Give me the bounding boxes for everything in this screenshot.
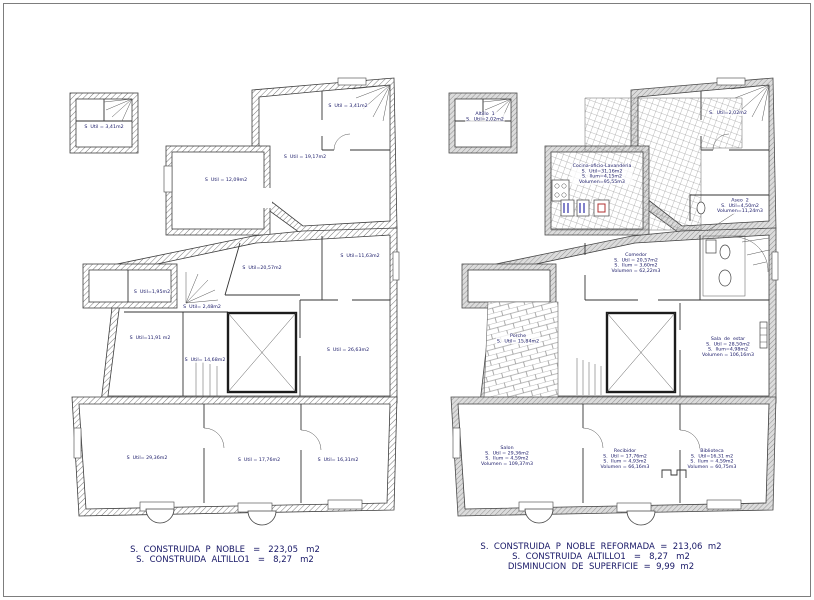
window xyxy=(717,78,745,85)
room-floor xyxy=(89,270,171,302)
porch-brick-floor xyxy=(484,302,558,398)
summary-line: S. CONSTRUIDA P NOBLE REFORMADA = 213,06… xyxy=(480,542,721,552)
toilet-icon xyxy=(720,245,730,259)
door-opening xyxy=(262,188,272,208)
room-label: S Util=1,95m2 xyxy=(133,289,171,294)
bay-window xyxy=(627,511,655,525)
room-label: S Util = 12,09m2 xyxy=(204,177,248,182)
room-label-line: S. Util= 15,84m2 xyxy=(497,339,539,344)
room-label: S Util= 29,36m2 xyxy=(126,455,169,460)
room-label-line: S Util= 16,31m2 xyxy=(318,457,359,462)
lightwell xyxy=(228,313,296,392)
room-label-line: S. Util=2,02m2 xyxy=(709,110,747,115)
room-label-line: S Util = 3,41m2 xyxy=(84,124,123,129)
appliance xyxy=(577,200,589,216)
room-label-line: S Util=1,95m2 xyxy=(134,289,170,294)
room-label: S Util= 14,68m2 xyxy=(184,357,227,362)
sink-icon xyxy=(706,240,716,253)
room-label: S Util = 26,63m2 xyxy=(326,347,370,352)
right-altillo xyxy=(449,93,517,153)
window xyxy=(772,252,778,280)
room-label-line: S Util=20,57m2 xyxy=(242,265,281,270)
room-label: S Util= 16,31m2 xyxy=(317,457,360,462)
room-floor xyxy=(468,270,550,302)
room-label-line: Volumen = 106,16m3 xyxy=(702,352,754,357)
room-label-line: Volumen = 66,16m3 xyxy=(601,464,650,469)
window xyxy=(74,428,81,458)
room-label: RecibidorS. Util = 17,76m2S. Ilum = 4,93… xyxy=(600,448,651,469)
window xyxy=(453,428,460,458)
room-label-line: S Util= 14,68m2 xyxy=(185,357,226,362)
room-label: ComedorS. Util = 20,57m2S. Ilum = 3,60m2… xyxy=(611,252,662,273)
room-label-line: Volumen = 62,22m3 xyxy=(612,268,661,273)
room-label-line: S Util = 26,63m2 xyxy=(327,347,369,352)
room-label-line: S Util=11,91 m2 xyxy=(130,335,171,340)
bay-window xyxy=(248,511,276,525)
window xyxy=(393,252,399,280)
room-label: S Util = 19,17m2 xyxy=(283,154,327,159)
room-label-line: Volumen = 60,75m3 xyxy=(688,464,737,469)
right-small-annex xyxy=(462,264,556,308)
cooktop xyxy=(552,180,569,201)
summary-line: S. CONSTRUIDA ALTILLO1 = 8,27 m2 xyxy=(130,555,320,565)
appliance xyxy=(594,200,609,216)
left-plan-summary: S. CONSTRUIDA P NOBLE = 223,05 m2S. CONS… xyxy=(130,545,320,565)
room-label: S Util=11,91 m2 xyxy=(129,335,172,340)
bay-window xyxy=(146,509,174,523)
room-label-line: S Util= 29,36m2 xyxy=(127,455,168,460)
room-label: S Util = 17,76m2 xyxy=(237,457,281,462)
room-floor xyxy=(172,152,264,229)
room-label: S Util=11,63m2 xyxy=(339,253,380,258)
room-label: Sala de estarS. Util = 28,50m2S. Ilum=4,… xyxy=(701,336,755,357)
right-plan-summary: S. CONSTRUIDA P NOBLE REFORMADA = 213,06… xyxy=(480,542,721,573)
left-small-annex xyxy=(83,264,177,308)
room-label: S. Util=2,02m2 xyxy=(708,110,748,115)
window xyxy=(328,500,362,509)
lightwell xyxy=(607,313,675,392)
plan-sheet: { "drawing": { "ink_color": "#171766", "… xyxy=(0,0,814,600)
room-label: S Util = 3,41m2 xyxy=(327,103,368,108)
room-label: S Util = 3,41m2 xyxy=(83,124,124,129)
bidet-icon xyxy=(719,270,731,286)
window xyxy=(707,500,741,509)
summary-line: S. CONSTRUIDA ALTILLO1 = 8,27 m2 xyxy=(480,552,721,562)
room-label-line: S Util = 17,76m2 xyxy=(238,457,280,462)
summary-line: S. CONSTRUIDA P NOBLE = 223,05 m2 xyxy=(130,545,320,555)
summary-line: DISMINUCION DE SUPERFICIE = 9,99 m2 xyxy=(480,562,721,572)
room-label: PorcheS. Util= 15,84m2 xyxy=(496,334,540,345)
room-label-line: Volumen=95,55m3 xyxy=(573,179,632,184)
room-label-line: Volumen = 109,37m3 xyxy=(481,461,533,466)
left-annex-room xyxy=(164,146,272,235)
room-label-line: Volumen=11,24m3 xyxy=(717,209,763,214)
room-label-line: S Util = 3,41m2 xyxy=(328,103,367,108)
room-label: S Util=20,57m2 xyxy=(241,265,282,270)
room-label: SalonS. Util = 29,36m2S. Ilum = 4,59m2Vo… xyxy=(480,445,534,466)
room-label-line: S. Util=2,02m2 xyxy=(466,117,504,122)
floor-plans-drawing xyxy=(0,0,814,600)
room-label: Aseo 2S. Util=4,50m2Volumen=11,24m3 xyxy=(716,198,764,214)
room-label: Altillo 1S. Util=2,02m2 xyxy=(465,112,505,123)
room-label-line: S Util= 2,48m2 xyxy=(183,304,221,309)
window xyxy=(164,166,172,192)
bay-window xyxy=(525,509,553,523)
room-label: S Util= 2,48m2 xyxy=(182,304,222,309)
toilet-icon xyxy=(697,202,705,214)
window xyxy=(338,78,366,85)
room-label: Cocina-oficio-LavanderiaS. Util=31,16m2S… xyxy=(572,163,633,184)
room-label-line: S Util = 19,17m2 xyxy=(284,154,326,159)
room-label-line: S Util=11,63m2 xyxy=(340,253,379,258)
room-label-line: S Util = 12,09m2 xyxy=(205,177,247,182)
room-label: BibliotecaS. Util=16,31 m2S. Ilum = 4,59… xyxy=(687,448,738,469)
